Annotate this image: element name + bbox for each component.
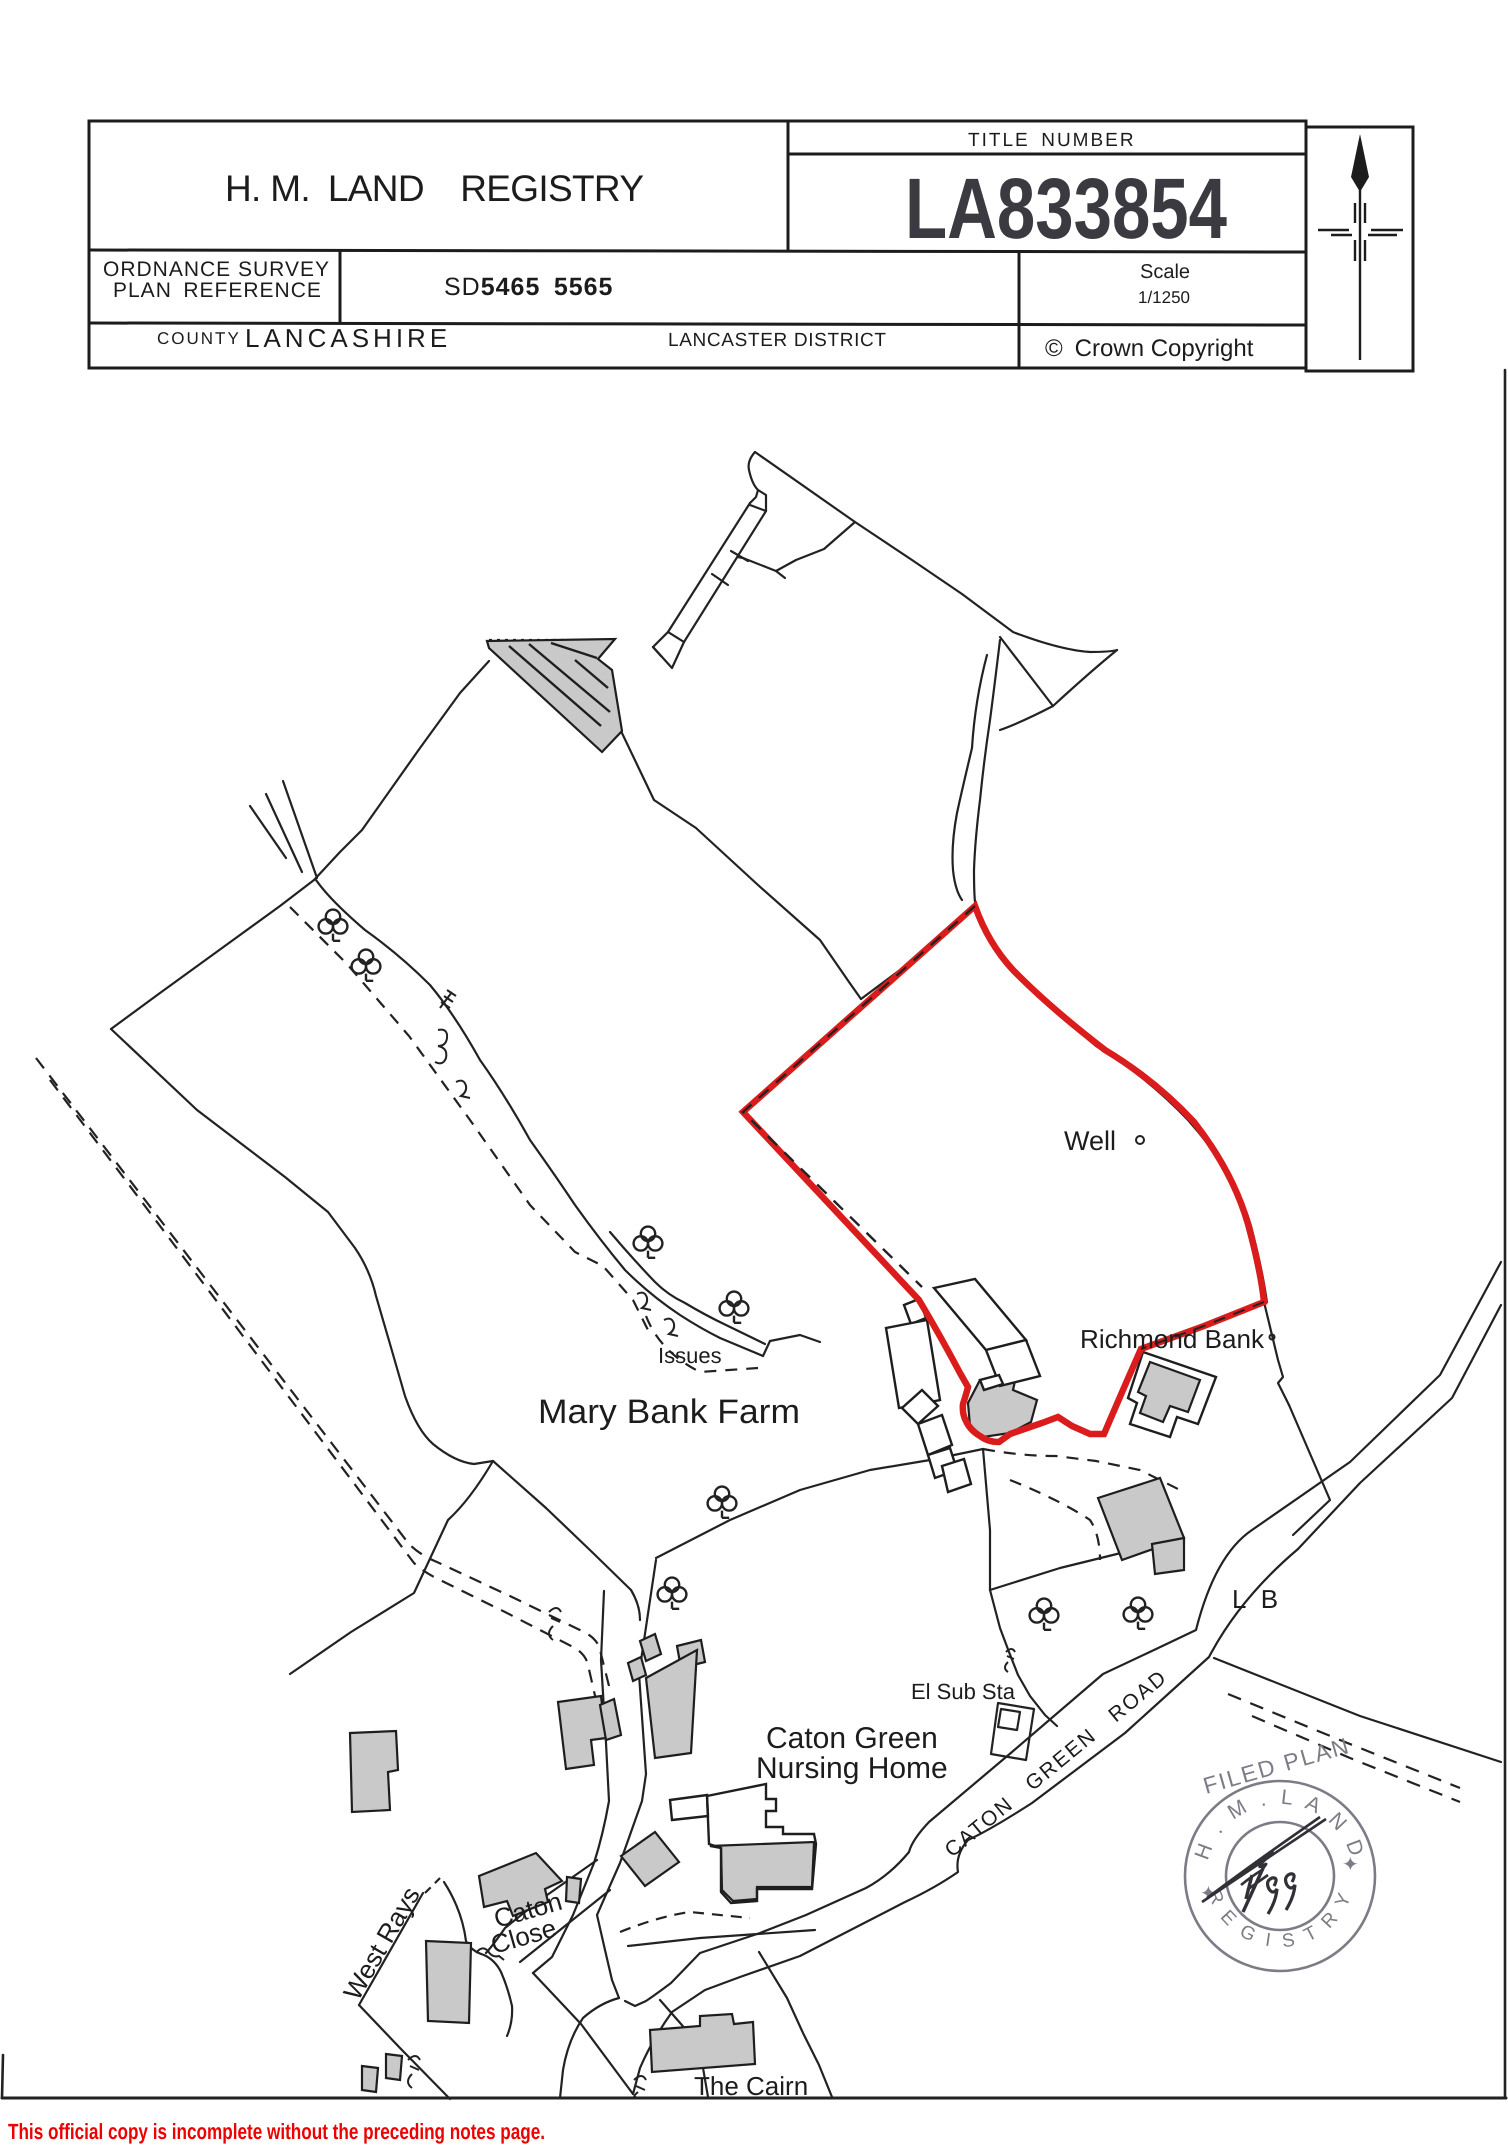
svg-text:ORDNANCE SURVEY: ORDNANCE SURVEY	[103, 258, 330, 281]
svg-text:El Sub Sta: El Sub Sta	[911, 1679, 1016, 1704]
svg-text:LANCASHIRE: LANCASHIRE	[245, 323, 451, 353]
svg-text:The Cairn: The Cairn	[694, 2071, 808, 2101]
svg-text:LANCASTER DISTRICT: LANCASTER DISTRICT	[668, 330, 886, 351]
svg-text:L B: L B	[1232, 1584, 1282, 1614]
svg-text:TITLE NUMBER: TITLE NUMBER	[968, 130, 1136, 151]
svg-text:PLAN REFERENCE: PLAN REFERENCE	[113, 279, 322, 302]
svg-text:LA833854: LA833854	[905, 161, 1227, 257]
svg-text:COUNTY: COUNTY	[157, 329, 241, 348]
svg-text:Nursing Home: Nursing Home	[756, 1752, 948, 1785]
svg-text:© Crown Copyright: © Crown Copyright	[1045, 335, 1254, 362]
svg-text:This official copy is incomple: This official copy is incomplete without…	[8, 2119, 545, 2144]
svg-text:H. M. LAND REGISTRY: H. M. LAND REGISTRY	[225, 168, 644, 209]
svg-text:Scale: Scale	[1140, 261, 1190, 283]
svg-text:Mary Bank Farm: Mary Bank Farm	[538, 1393, 800, 1431]
svg-text:1/1250: 1/1250	[1138, 288, 1190, 307]
svg-text:Well: Well	[1064, 1126, 1116, 1156]
svg-text:Issues: Issues	[658, 1343, 722, 1368]
svg-text:SD5465 5565: SD5465 5565	[444, 273, 613, 301]
svg-text:Richmond Bank: Richmond Bank	[1080, 1324, 1265, 1354]
svg-text:✦: ✦	[1342, 1854, 1359, 1876]
svg-text:Caton Green: Caton Green	[766, 1722, 938, 1755]
